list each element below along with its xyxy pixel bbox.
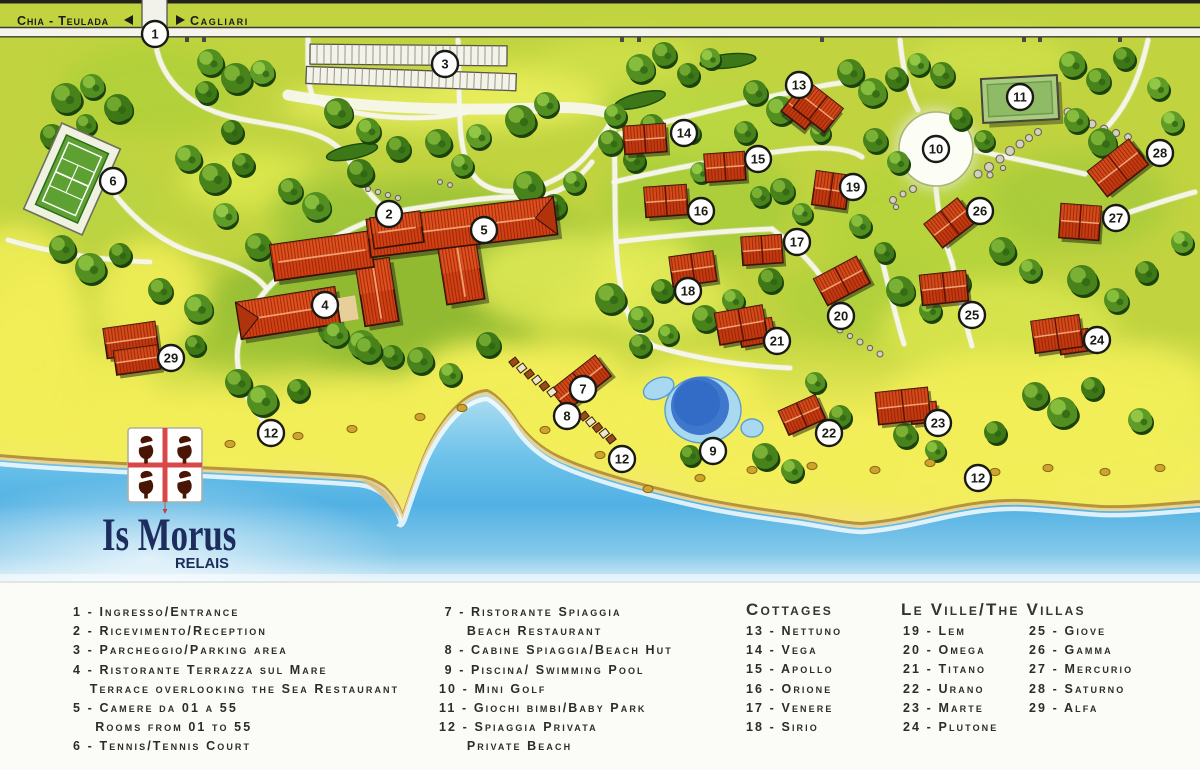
svg-text:6: 6 — [109, 174, 116, 189]
svg-text:24: 24 — [1090, 333, 1105, 348]
svg-text:19: 19 — [846, 180, 860, 195]
svg-text:7: 7 — [579, 382, 586, 397]
svg-text:12: 12 — [264, 426, 278, 441]
svg-text:RELAIS: RELAIS — [175, 555, 229, 572]
svg-text:25: 25 — [965, 308, 979, 323]
svg-text:20: 20 — [834, 309, 848, 324]
svg-text:16: 16 — [694, 204, 708, 219]
svg-text:26: 26 — [973, 204, 987, 219]
svg-text:Cagliari: Cagliari — [190, 14, 249, 28]
svg-text:9: 9 — [709, 444, 716, 459]
svg-text:21: 21 — [770, 334, 784, 349]
svg-text:5: 5 — [480, 223, 487, 238]
svg-text:Is Morus: Is Morus — [102, 508, 236, 560]
svg-text:10: 10 — [929, 142, 943, 157]
svg-text:23: 23 — [931, 416, 945, 431]
svg-text:18: 18 — [681, 284, 695, 299]
svg-text:1: 1 — [151, 27, 158, 42]
svg-text:14: 14 — [677, 126, 692, 141]
svg-text:4: 4 — [321, 298, 329, 313]
svg-text:13: 13 — [792, 78, 806, 93]
svg-text:2: 2 — [385, 207, 392, 222]
svg-text:28: 28 — [1153, 146, 1167, 161]
svg-text:29: 29 — [164, 351, 178, 366]
svg-text:15: 15 — [751, 152, 765, 167]
svg-text:22: 22 — [822, 426, 836, 441]
svg-text:8: 8 — [563, 409, 570, 424]
svg-text:12: 12 — [971, 471, 985, 486]
svg-text:3: 3 — [441, 57, 448, 72]
svg-text:17: 17 — [790, 235, 804, 250]
svg-text:Chia - Teulada: Chia - Teulada — [17, 14, 109, 28]
svg-text:27: 27 — [1109, 211, 1123, 226]
svg-text:12: 12 — [615, 452, 629, 467]
svg-text:11: 11 — [1013, 90, 1027, 105]
